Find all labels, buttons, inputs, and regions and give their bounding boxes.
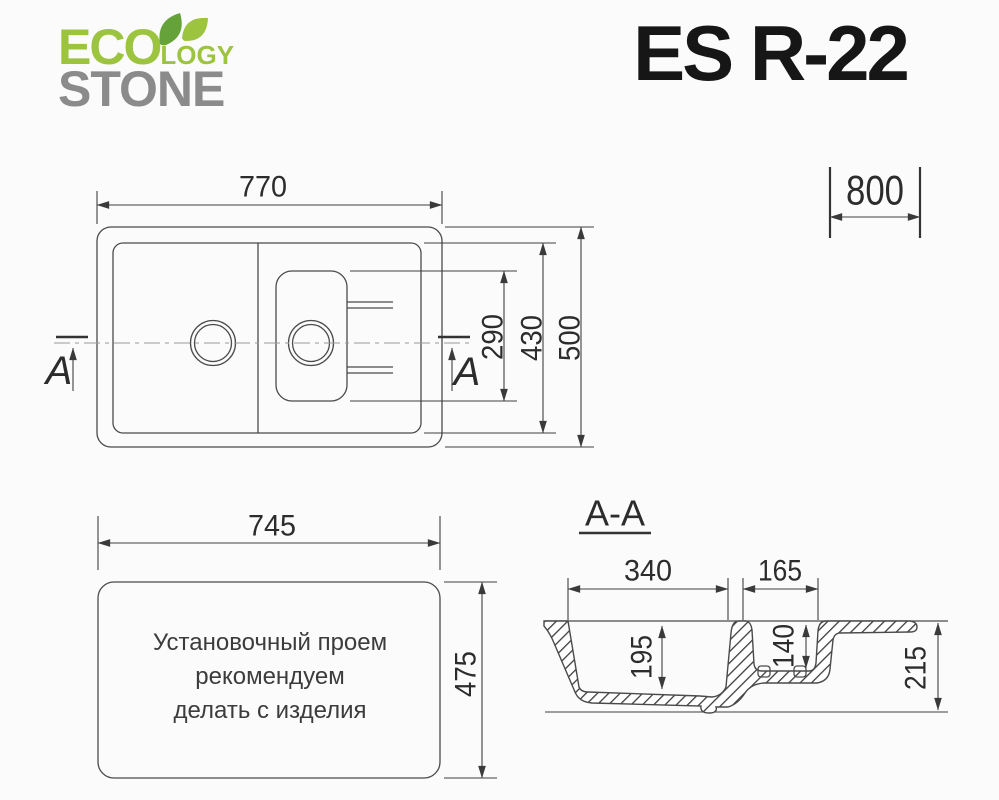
dim-215: 215 (900, 623, 939, 710)
dim-430-label: 430 (516, 315, 549, 361)
dim-340: 340 (568, 555, 728, 621)
cutout-rect (98, 582, 440, 778)
dim-800-label: 800 (846, 167, 904, 214)
technical-drawing: A A 770 290 (0, 0, 999, 800)
dim-475-label: 475 (450, 651, 483, 697)
dim-745: 745 (98, 510, 440, 571)
section-wall-profile (544, 621, 917, 713)
sink-dimension-sheet: ECOLOGY STONE ES R-22 Установочный проем… (0, 0, 999, 800)
plan-overflow-grooves (347, 302, 393, 373)
section-letter-left: A (44, 349, 73, 393)
dim-140: 140 (768, 624, 807, 668)
dim-165-label: 165 (758, 555, 802, 588)
dim-140-label: 140 (768, 624, 801, 668)
cutout-view: 745 475 (98, 510, 497, 779)
section-cut-left: A (44, 337, 88, 393)
dim-340-label: 340 (624, 555, 672, 588)
dim-800: 800 (830, 167, 920, 238)
section-view: A-A 340 165 (544, 493, 948, 713)
section-cut-right: A (438, 337, 480, 394)
dim-195-label: 195 (626, 635, 659, 679)
dim-215-label: 215 (900, 646, 933, 690)
dim-475: 475 (444, 582, 497, 778)
plan-small-bowl (276, 271, 347, 401)
plan-view: A A 770 290 (44, 171, 594, 448)
dim-500-label: 500 (554, 315, 587, 361)
section-title: A-A (585, 493, 645, 534)
dim-770-label: 770 (239, 171, 287, 204)
dim-165: 165 (743, 555, 818, 621)
dim-195: 195 (626, 626, 663, 689)
dim-290: 290 (350, 271, 517, 401)
dim-770: 770 (97, 171, 442, 225)
dim-745-label: 745 (248, 510, 296, 543)
plan-outer-rim (97, 227, 442, 447)
dim-290-label: 290 (477, 314, 510, 360)
